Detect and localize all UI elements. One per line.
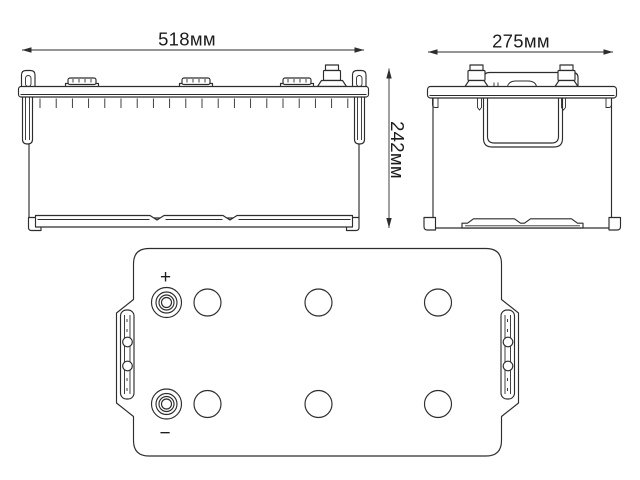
- vent-cap-strip: [180, 78, 213, 87]
- arrow-left-icon: [428, 49, 438, 54]
- depth-dimension: 275мм: [428, 31, 613, 55]
- height-dimension: 242мм: [386, 69, 408, 229]
- battery-case: [29, 96, 359, 218]
- battery-lid: [19, 87, 369, 98]
- arrow-right-icon: [355, 47, 365, 52]
- side-handle-bar: [121, 310, 135, 399]
- side-handle-bar: [501, 310, 515, 399]
- vent-cap-strip: [281, 78, 314, 87]
- arrow-up-icon: [386, 69, 391, 79]
- arrow-left-icon: [22, 47, 32, 52]
- arrow-down-icon: [386, 218, 391, 228]
- width-dimension: 518мм: [22, 29, 364, 53]
- positive-terminal-label: +: [160, 267, 171, 288]
- depth-dimension-label: 275мм: [492, 31, 550, 52]
- front-view: [19, 65, 369, 231]
- base-foot: [424, 218, 436, 231]
- base-foot: [609, 218, 621, 231]
- terminal-post: [465, 65, 488, 87]
- side-view: [424, 65, 621, 230]
- side-strap: [355, 95, 365, 144]
- height-dimension-label: 242мм: [387, 121, 408, 179]
- width-dimension-label: 518мм: [158, 29, 216, 50]
- negative-terminal-label: −: [159, 423, 170, 444]
- base-rail: [36, 216, 353, 228]
- battery-case-top: [117, 249, 519, 457]
- battery-technical-drawing: 518мм 275мм 242мм: [0, 0, 640, 480]
- terminal-post: [318, 65, 347, 87]
- battery-lid: [428, 87, 617, 99]
- battery-case: [433, 98, 612, 229]
- arrow-right-icon: [604, 49, 614, 54]
- side-strap: [23, 95, 33, 144]
- drawing-canvas: 518мм 275мм 242мм: [0, 0, 640, 480]
- top-view: + −: [117, 249, 519, 457]
- vent-cap-strip: [66, 78, 99, 87]
- terminal-post: [555, 65, 578, 87]
